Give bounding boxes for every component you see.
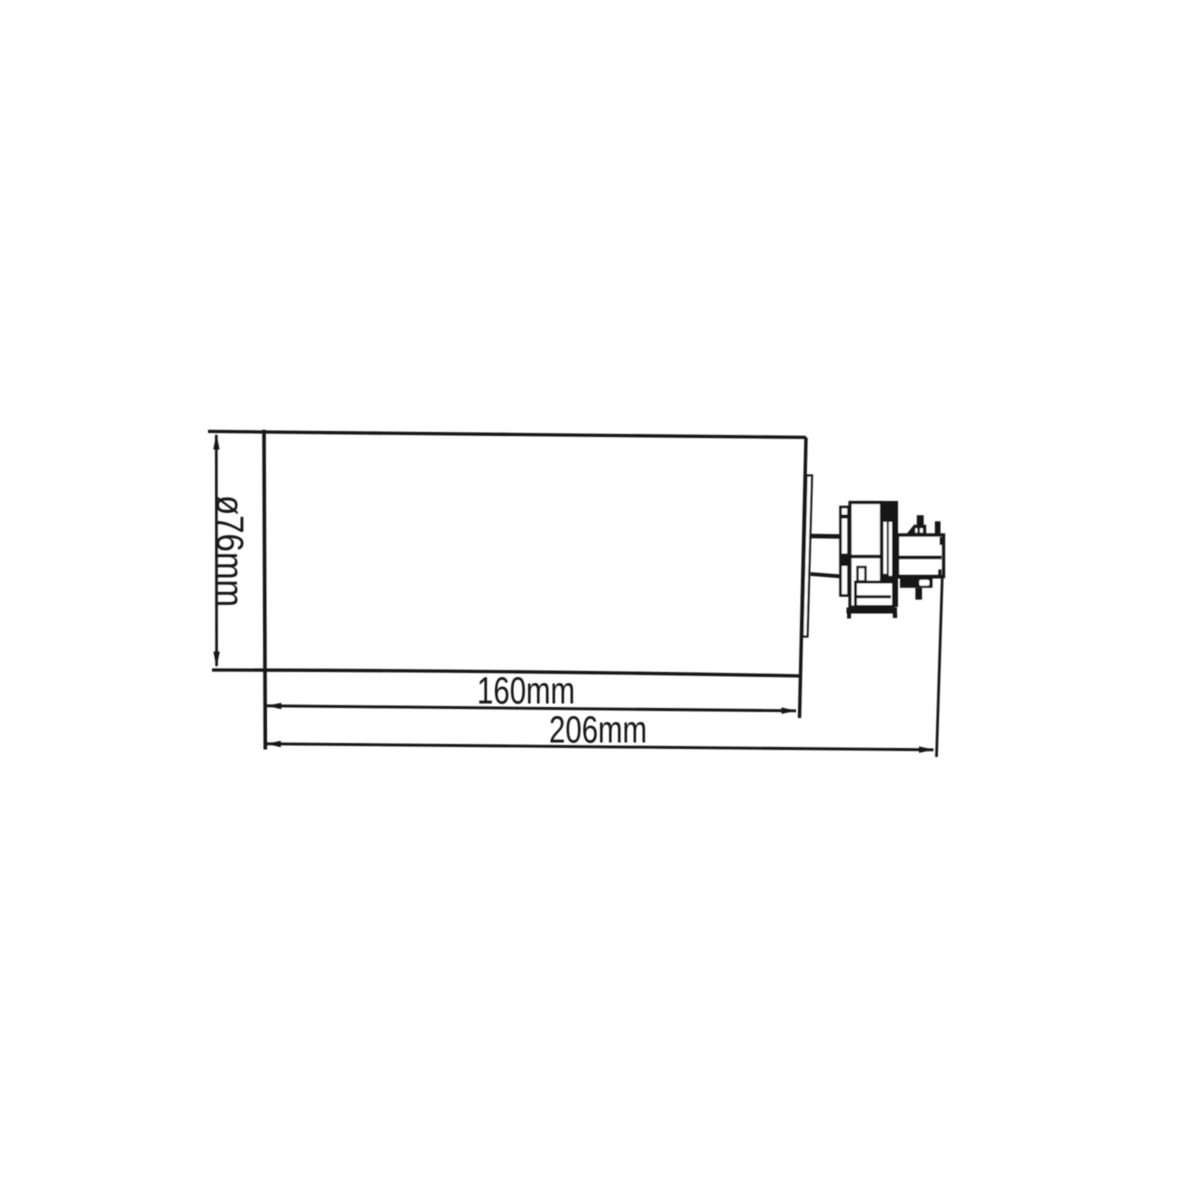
svg-text:206mm: 206mm: [549, 710, 647, 752]
svg-text:160mm: 160mm: [477, 671, 575, 713]
svg-text:ø76mm: ø76mm: [208, 495, 250, 607]
